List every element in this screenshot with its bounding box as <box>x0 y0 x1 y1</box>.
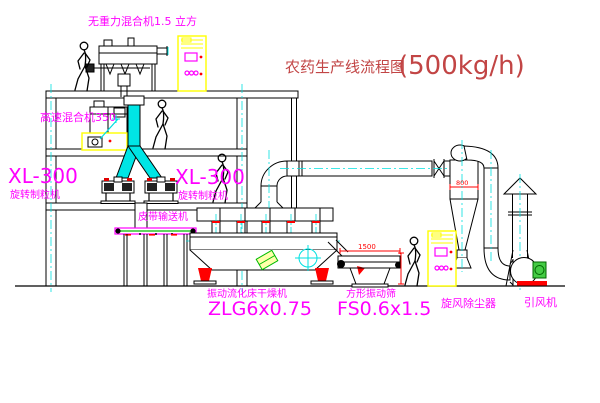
granulator-left <box>101 177 135 204</box>
high-speed-mixer <box>82 101 127 150</box>
granulator-left-model-label: XL-300 <box>8 164 78 188</box>
column-right <box>292 98 297 210</box>
belt-conveyor <box>115 228 196 286</box>
page-title-capacity: (500kg/h) <box>398 51 525 81</box>
cyclone-label: 旋风除尘器 <box>441 296 496 310</box>
person-figure <box>75 42 90 91</box>
high-speed-mixer-label: 高速混合机350 <box>40 110 116 124</box>
drawing-canvas: 800 1500 <box>0 0 600 403</box>
page-title: 农药生产线流程图 <box>285 58 405 76</box>
induced-draft-fan <box>510 258 551 287</box>
dryer-model-label: ZLG6x0.75 <box>208 298 312 320</box>
person-figure <box>405 237 420 286</box>
fan-label: 引风机 <box>524 295 557 309</box>
control-cabinet-1 <box>178 36 206 91</box>
floor-slab-top <box>46 91 298 98</box>
exhaust-duct <box>255 150 452 208</box>
cyclone-dim-label: 800 <box>456 179 468 187</box>
person-figure <box>153 100 168 149</box>
granulator-left-name-label: 旋转制粒机 <box>10 188 60 201</box>
granulator-right <box>144 177 178 204</box>
granulator-right-model-label: XL-300 <box>175 165 245 189</box>
process-flow-drawing: 800 1500 <box>0 0 600 403</box>
gravity-mixer-label: 无重力混合机1.5 立方 <box>88 14 197 28</box>
screen-dim-label: 1500 <box>358 243 376 251</box>
control-cabinet-2 <box>428 231 456 286</box>
belt-conveyor-label: 皮带输送机 <box>138 210 188 223</box>
granulator-right-name-label: 旋转制粒机 <box>178 189 228 202</box>
screen-model-label: FS0.6x1.5 <box>337 298 431 320</box>
gravity-mixer <box>86 38 168 97</box>
fluid-bed-dryer <box>186 208 340 284</box>
